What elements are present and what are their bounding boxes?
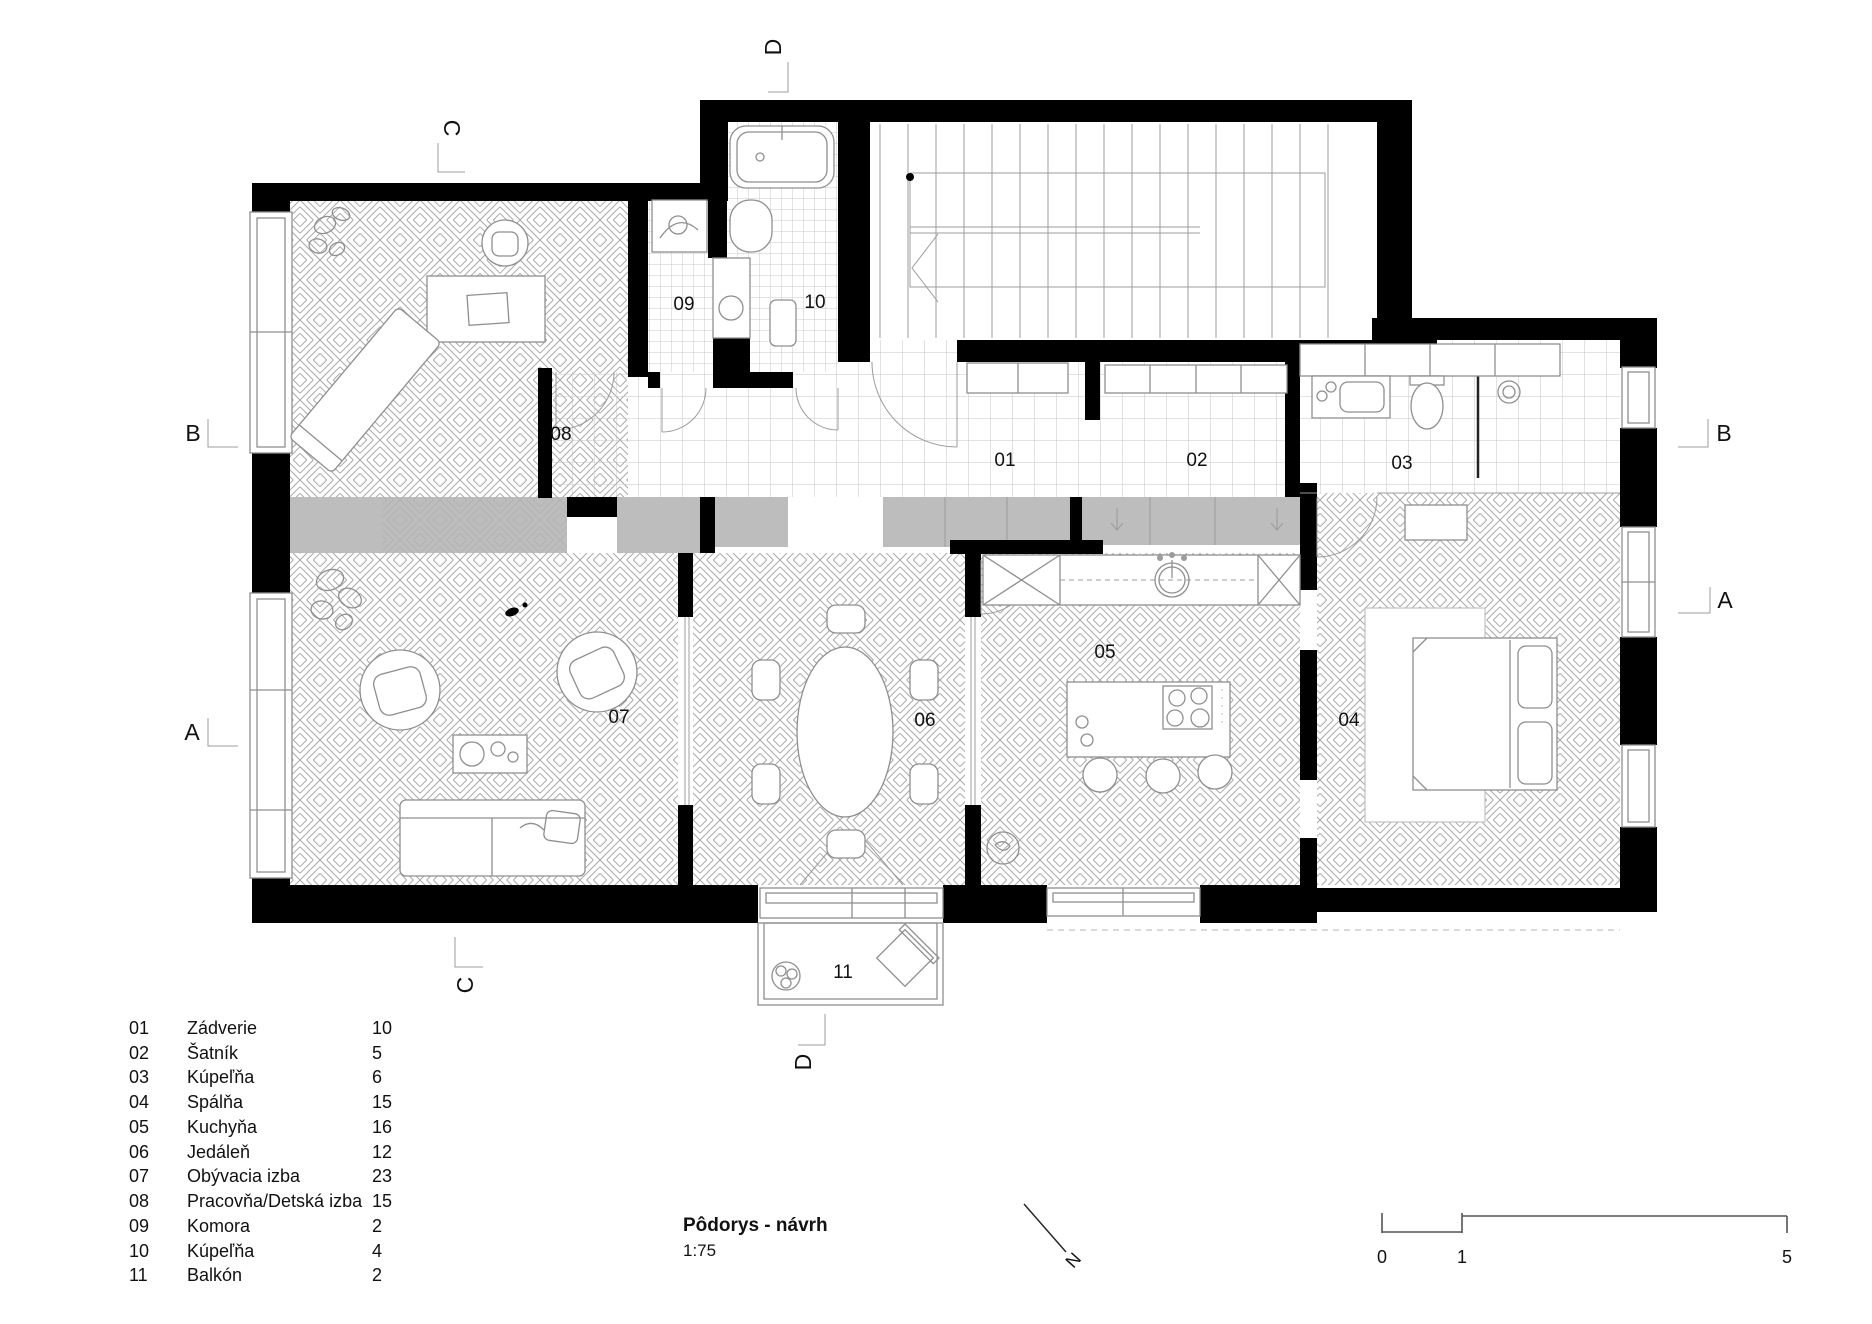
cabinet-band-07-glass bbox=[382, 497, 567, 553]
section-d-top: D bbox=[760, 39, 786, 56]
legend-row: 02 Šatník 5 bbox=[129, 1042, 382, 1063]
chair-right-2 bbox=[910, 764, 938, 804]
stool-3 bbox=[1198, 755, 1232, 789]
legend-name: Komora bbox=[187, 1216, 251, 1236]
armchair-2 bbox=[557, 632, 637, 712]
room-label-01: 01 bbox=[994, 450, 1015, 471]
room-label-02: 02 bbox=[1186, 450, 1207, 471]
legend-area: 23 bbox=[372, 1166, 392, 1186]
balcony-chair bbox=[874, 924, 939, 989]
section-a-right-leader bbox=[1678, 587, 1710, 613]
section-b-right: B bbox=[1716, 420, 1731, 446]
faucet-dot1 bbox=[1157, 555, 1163, 561]
builtin-cabinets bbox=[290, 497, 1303, 553]
legend-row: 11 Balkón 2 bbox=[129, 1265, 382, 1285]
bedroom-cabinet bbox=[1405, 505, 1467, 540]
legend-num: 11 bbox=[129, 1265, 148, 1285]
legend-name: Kúpeľňa bbox=[187, 1067, 255, 1087]
window-left-upper bbox=[250, 212, 292, 453]
legend-num: 03 bbox=[129, 1067, 149, 1087]
fixtures-hall-01 bbox=[967, 363, 1287, 393]
desk-chair bbox=[482, 220, 528, 266]
legend-num: 04 bbox=[129, 1092, 149, 1112]
scale-bar-1: 1 bbox=[1457, 1247, 1467, 1267]
kitchen-island bbox=[1067, 682, 1230, 757]
section-d-top-leader bbox=[768, 62, 788, 92]
section-d-bottom-leader bbox=[798, 1014, 825, 1045]
room-label-08: 08 bbox=[550, 424, 571, 445]
legend-row: 10 Kúpeľňa 4 bbox=[129, 1241, 382, 1261]
balcony-cup2 bbox=[787, 969, 797, 979]
toilet-03 bbox=[1411, 383, 1443, 429]
section-b-left-leader bbox=[208, 419, 238, 447]
chair-left-1 bbox=[752, 660, 780, 700]
section-d-bottom: D bbox=[790, 1054, 816, 1071]
room-label-11: 11 bbox=[833, 962, 853, 983]
decor-bird-dot bbox=[523, 603, 528, 608]
legend-name: Šatník bbox=[187, 1042, 239, 1063]
legend-num: 08 bbox=[129, 1191, 149, 1211]
legend-area: 6 bbox=[372, 1067, 382, 1087]
section-a-left: A bbox=[184, 719, 200, 745]
floor-plan-sheet: 01 02 03 04 05 06 07 08 09 10 11 C C D D… bbox=[0, 0, 1872, 1324]
cabinet-band-hall-left bbox=[715, 497, 788, 547]
window-balcony-door bbox=[760, 888, 943, 918]
room-label-06: 06 bbox=[914, 710, 935, 731]
floor-stairwell bbox=[870, 122, 1377, 340]
legend-area: 5 bbox=[372, 1043, 382, 1063]
legend-name: Jedáleň bbox=[187, 1142, 250, 1162]
legend-row: 06 Jedáleň 12 bbox=[129, 1142, 392, 1162]
legend-row: 09 Komora 2 bbox=[129, 1216, 382, 1236]
legend-num: 10 bbox=[129, 1241, 149, 1261]
sliding-partition-06-05 bbox=[971, 617, 975, 805]
drawing-scale: 1:75 bbox=[683, 1241, 716, 1260]
legend-area: 2 bbox=[372, 1216, 382, 1236]
chair-top bbox=[827, 605, 865, 633]
legend-num: 02 bbox=[129, 1043, 149, 1063]
room-label-10: 10 bbox=[804, 292, 825, 313]
faucet-dot2 bbox=[1169, 552, 1175, 558]
section-a-left-leader bbox=[208, 718, 238, 746]
legend: 01 Zádverie 10 02 Šatník 5 03 Kúpeľňa 6 … bbox=[129, 1018, 392, 1285]
balcony-inner bbox=[764, 923, 937, 999]
legend-area: 12 bbox=[372, 1142, 392, 1162]
legend-name: Zádverie bbox=[187, 1018, 257, 1038]
scale-bar-lines bbox=[1382, 1213, 1787, 1233]
room-label-04: 04 bbox=[1338, 710, 1360, 731]
window-right-top bbox=[1622, 367, 1655, 428]
faucet-dot3 bbox=[1181, 555, 1187, 561]
legend-row: 05 Kuchyňa 16 bbox=[129, 1117, 392, 1137]
niche-cabinet bbox=[713, 258, 750, 338]
legend-name: Kuchyňa bbox=[187, 1117, 258, 1137]
section-c-top: C bbox=[439, 120, 465, 137]
washbasin-10 bbox=[770, 300, 796, 346]
legend-name: Balkón bbox=[187, 1265, 242, 1285]
section-b-left: B bbox=[185, 420, 200, 446]
legend-row: 01 Zádverie 10 bbox=[129, 1018, 392, 1038]
north-label: N bbox=[1061, 1248, 1085, 1271]
window-right-mid bbox=[1622, 527, 1655, 637]
window-right-low bbox=[1622, 745, 1655, 827]
legend-row: 03 Kúpeľňa 6 bbox=[129, 1067, 382, 1087]
balcony-table bbox=[772, 962, 800, 990]
legend-row: 08 Pracovňa/Detská izba 15 bbox=[129, 1191, 392, 1211]
room-label-09: 09 bbox=[673, 294, 694, 315]
bed bbox=[1413, 638, 1557, 790]
stair-start-dot bbox=[906, 173, 914, 181]
desk bbox=[427, 276, 545, 342]
title-block: Pôdorys - návrh 1:75 bbox=[683, 1215, 828, 1260]
legend-area: 15 bbox=[372, 1191, 392, 1211]
section-a-right: A bbox=[1717, 587, 1733, 613]
cabinet-band-hall bbox=[883, 497, 1070, 547]
balcony-cup1 bbox=[776, 966, 786, 976]
chair-right-1 bbox=[910, 660, 938, 700]
legend-name: Kúpeľňa bbox=[187, 1241, 255, 1261]
scale-bar: 0 1 5 bbox=[1377, 1213, 1792, 1267]
furniture-room-09 bbox=[652, 200, 707, 252]
coffee-table bbox=[453, 735, 527, 773]
stool-2 bbox=[1146, 759, 1180, 793]
wardrobe-room-02 bbox=[1082, 497, 1303, 545]
chair-left-2 bbox=[752, 764, 780, 804]
sliding-partition-07-06 bbox=[685, 617, 689, 805]
legend-name: Spálňa bbox=[187, 1092, 244, 1112]
dining-table bbox=[797, 647, 893, 817]
drawing-title: Pôdorys - návrh bbox=[683, 1215, 828, 1236]
legend-num: 07 bbox=[129, 1166, 149, 1186]
north-arrow-line bbox=[1024, 1204, 1066, 1252]
section-c-bottom: C bbox=[452, 977, 478, 994]
room-label-03: 03 bbox=[1391, 453, 1412, 474]
window-kitchen bbox=[1047, 888, 1200, 916]
legend-area: 16 bbox=[372, 1117, 392, 1137]
section-c-bottom-leader bbox=[455, 937, 483, 967]
legend-num: 05 bbox=[129, 1117, 149, 1137]
sofa bbox=[400, 800, 585, 876]
toilet-10 bbox=[730, 200, 772, 252]
legend-area: 15 bbox=[372, 1092, 392, 1112]
scale-bar-5: 5 bbox=[1782, 1247, 1792, 1267]
shower-tray bbox=[652, 200, 707, 252]
legend-num: 06 bbox=[129, 1142, 149, 1162]
room-label-05: 05 bbox=[1094, 642, 1115, 663]
room-label-07: 07 bbox=[608, 707, 629, 728]
legend-num: 09 bbox=[129, 1216, 149, 1236]
legend-name: Pracovňa/Detská izba bbox=[187, 1191, 363, 1211]
balcony-cup3 bbox=[781, 978, 791, 988]
legend-area: 4 bbox=[372, 1241, 382, 1261]
legend-num: 01 bbox=[129, 1018, 149, 1038]
legend-area: 10 bbox=[372, 1018, 392, 1038]
cabinet-band-08side bbox=[617, 497, 700, 553]
armchair-1 bbox=[360, 650, 440, 730]
window-left-lower bbox=[250, 593, 292, 878]
legend-row: 04 Spálňa 15 bbox=[129, 1092, 392, 1112]
legend-row: 07 Obývacia izba 23 bbox=[129, 1166, 392, 1186]
scale-bar-0: 0 bbox=[1377, 1247, 1387, 1267]
chair-bottom bbox=[827, 830, 865, 858]
section-c-top-leader bbox=[438, 143, 465, 172]
north-arrow: N bbox=[1024, 1204, 1085, 1272]
legend-name: Obývacia izba bbox=[187, 1166, 301, 1186]
legend-area: 2 bbox=[372, 1265, 382, 1285]
stool-1 bbox=[1083, 758, 1117, 792]
section-b-right-leader bbox=[1678, 419, 1708, 447]
